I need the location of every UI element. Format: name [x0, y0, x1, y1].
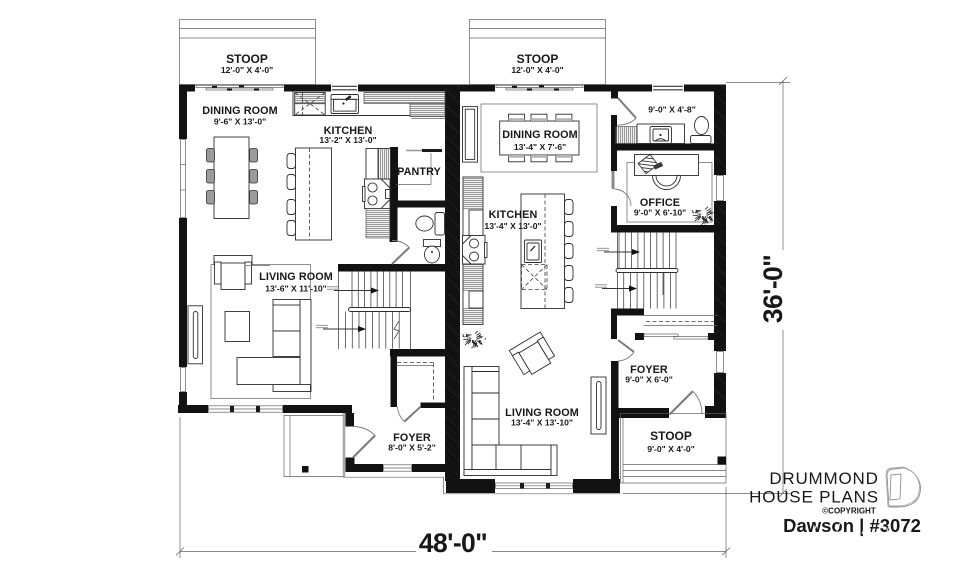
svg-text:DINING ROOM: DINING ROOM	[502, 129, 577, 141]
svg-text:13'-4" X 7'-6": 13'-4" X 7'-6"	[514, 142, 566, 152]
svg-text:13'-4" X 13'-10": 13'-4" X 13'-10"	[511, 418, 573, 428]
svg-text:PANTRY: PANTRY	[397, 166, 441, 178]
svg-text:9'-0" X 6'-10": 9'-0" X 6'-10"	[634, 208, 686, 218]
svg-text:DRUMMOND: DRUMMOND	[769, 469, 878, 488]
svg-text:Dawson | #3072: Dawson | #3072	[783, 515, 921, 536]
svg-text:HOUSE PLANS: HOUSE PLANS	[749, 488, 879, 507]
svg-text:STOOP: STOOP	[517, 52, 559, 66]
svg-text:STOOP: STOOP	[650, 429, 692, 443]
svg-text:36'-0": 36'-0"	[758, 255, 788, 323]
svg-text:DINING ROOM: DINING ROOM	[202, 105, 277, 117]
svg-text:13'-2" X 13'-0": 13'-2" X 13'-0"	[319, 135, 376, 145]
svg-text:STOOP: STOOP	[226, 52, 268, 66]
svg-text:LIVING ROOM: LIVING ROOM	[259, 271, 333, 283]
svg-text:9'-0" X 4'-0": 9'-0" X 4'-0"	[647, 444, 695, 454]
svg-text:8'-0" X 5'-2": 8'-0" X 5'-2"	[388, 443, 436, 453]
svg-text:13'-6" X 11'-10": 13'-6" X 11'-10"	[265, 284, 326, 294]
svg-text:13'-4" X 13'-0": 13'-4" X 13'-0"	[484, 221, 541, 231]
svg-text:9'-0" X 6'-0": 9'-0" X 6'-0"	[625, 375, 673, 385]
svg-text:48'-0": 48'-0"	[419, 528, 487, 558]
svg-text:9'-0" X 4'-8": 9'-0" X 4'-8"	[648, 105, 696, 115]
svg-text:9'-6" X 13'-0": 9'-6" X 13'-0"	[214, 117, 266, 127]
svg-text:12'-0" X 4'-0": 12'-0" X 4'-0"	[221, 65, 273, 75]
svg-text:KITCHEN: KITCHEN	[489, 209, 538, 221]
svg-text:12'-0" X 4'-0": 12'-0" X 4'-0"	[511, 65, 563, 75]
